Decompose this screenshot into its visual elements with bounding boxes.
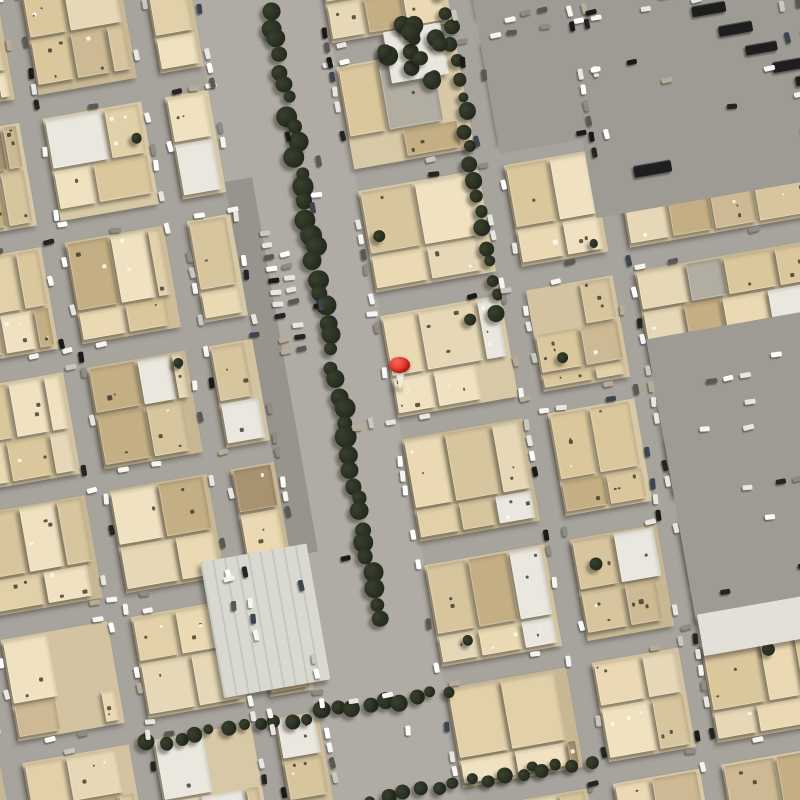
roof-detail xyxy=(422,472,424,474)
roof-detail xyxy=(50,573,55,578)
parked-car xyxy=(701,680,706,690)
roof-detail xyxy=(205,259,208,262)
roof-detail xyxy=(110,116,115,121)
roof-detail xyxy=(536,634,539,637)
parked-car xyxy=(272,432,278,444)
city-block xyxy=(0,495,103,616)
parked-car xyxy=(366,311,377,317)
roof-detail xyxy=(59,41,63,45)
roof-detail xyxy=(748,711,752,715)
parked-car xyxy=(28,68,34,79)
building xyxy=(580,321,623,365)
building xyxy=(507,796,565,800)
roof-detail xyxy=(569,438,572,441)
city-block xyxy=(0,372,81,492)
roof-detail xyxy=(24,214,28,218)
roof-detail xyxy=(614,488,617,491)
building xyxy=(724,758,783,800)
roof-detail xyxy=(82,589,87,594)
roof-detail xyxy=(510,477,513,480)
building xyxy=(459,498,497,530)
parked-car xyxy=(752,736,764,743)
parked-car xyxy=(524,419,531,431)
building xyxy=(120,539,179,589)
parked-car xyxy=(144,112,152,123)
tree xyxy=(443,18,461,36)
roof-detail xyxy=(512,466,515,469)
building xyxy=(562,216,603,255)
building xyxy=(594,656,647,705)
roof-detail xyxy=(553,239,558,244)
roof-detail xyxy=(595,603,598,606)
city-block xyxy=(43,101,160,221)
parked-car xyxy=(562,526,569,537)
roof-detail xyxy=(0,212,2,216)
parked-car xyxy=(42,147,48,158)
city-block xyxy=(0,247,59,367)
parked-car xyxy=(748,226,760,234)
roof-detail xyxy=(737,213,742,218)
parked-car xyxy=(6,39,13,50)
parked-car xyxy=(490,230,497,241)
city-block xyxy=(526,275,631,392)
roof-detail xyxy=(160,625,163,628)
parked-car xyxy=(270,289,282,295)
building xyxy=(137,355,176,403)
roof-detail xyxy=(607,561,611,565)
roof-detail xyxy=(570,465,573,468)
roof-detail xyxy=(532,199,535,202)
roof-detail xyxy=(481,306,486,311)
roof-detail xyxy=(525,501,530,506)
roof-detail xyxy=(26,693,29,696)
parked-car xyxy=(231,601,237,612)
building xyxy=(221,397,265,443)
building xyxy=(581,585,629,632)
roof-detail xyxy=(127,268,131,272)
roof-detail xyxy=(435,251,440,256)
roof-detail xyxy=(107,395,112,400)
roof-detail xyxy=(176,116,180,120)
roof-detail xyxy=(7,133,12,138)
building xyxy=(652,771,704,800)
roof-detail xyxy=(571,749,575,753)
building xyxy=(448,681,509,757)
parked-car xyxy=(529,451,535,462)
building xyxy=(45,111,109,169)
roof-detail xyxy=(103,761,106,764)
roof-detail xyxy=(45,338,48,341)
roof-detail xyxy=(293,764,296,767)
roof-detail xyxy=(427,325,431,329)
building xyxy=(14,699,60,737)
roof-detail xyxy=(534,554,538,558)
roof-detail xyxy=(600,304,604,308)
city-block xyxy=(548,398,653,516)
pin-head xyxy=(389,357,410,373)
city-block xyxy=(1,621,125,741)
roof-detail xyxy=(412,91,415,94)
parked-car xyxy=(163,222,170,233)
roof-detail xyxy=(48,48,53,53)
parked-car xyxy=(44,736,56,744)
roof-detail xyxy=(113,393,115,395)
building xyxy=(427,238,483,279)
pin-tail xyxy=(395,371,405,390)
roof-detail xyxy=(182,115,184,117)
building xyxy=(589,401,640,472)
building xyxy=(3,634,58,703)
parked-car xyxy=(208,475,214,486)
roof-detail xyxy=(411,148,415,152)
roof-detail xyxy=(544,357,547,360)
roof-detail xyxy=(92,764,95,767)
parked-car xyxy=(685,748,696,754)
parked-car xyxy=(425,156,436,163)
building xyxy=(125,298,169,332)
roof-detail xyxy=(636,789,639,792)
building xyxy=(31,34,75,85)
city-block xyxy=(0,0,15,118)
parked-car xyxy=(78,730,89,738)
parked-car xyxy=(123,604,130,616)
parked-car xyxy=(244,270,250,280)
roof-detail xyxy=(644,553,648,557)
roof-detail xyxy=(82,779,86,783)
parked-car xyxy=(460,57,466,68)
roof-detail xyxy=(732,200,736,204)
building xyxy=(418,302,484,370)
building xyxy=(79,306,127,340)
roof-detail xyxy=(460,643,463,646)
roof-detail xyxy=(734,667,738,671)
building xyxy=(637,265,690,310)
parked-car xyxy=(650,478,656,489)
roof-detail xyxy=(100,66,104,70)
roof-detail xyxy=(450,604,454,608)
roof-detail xyxy=(160,286,164,290)
roof-detail xyxy=(144,635,148,639)
parked-car xyxy=(118,466,130,473)
roof-detail xyxy=(292,772,295,775)
building xyxy=(756,698,800,732)
roof-detail xyxy=(412,8,416,12)
roof-detail xyxy=(304,735,307,738)
parked-car xyxy=(47,275,54,286)
city-block xyxy=(570,524,675,641)
building xyxy=(403,121,461,156)
roof-detail xyxy=(596,667,599,670)
building xyxy=(433,364,482,406)
satellite-map[interactable]: co xyxy=(0,0,800,800)
roof-detail xyxy=(645,604,649,608)
city-block xyxy=(21,0,137,95)
building xyxy=(211,342,253,401)
roof-detail xyxy=(43,456,46,459)
building xyxy=(614,527,662,582)
parked-car xyxy=(677,636,683,646)
roof-detail xyxy=(114,141,119,146)
satellite-imagery-layer xyxy=(0,0,800,800)
roof-detail xyxy=(32,15,34,17)
parked-car xyxy=(727,104,737,110)
roof-detail xyxy=(179,445,182,448)
building xyxy=(133,612,180,661)
roof-detail xyxy=(199,624,202,627)
roof-detail xyxy=(23,338,28,343)
parked-car xyxy=(197,412,204,423)
parked-car xyxy=(192,380,197,390)
parked-car xyxy=(145,719,155,725)
roof-detail xyxy=(54,75,57,78)
building xyxy=(89,362,142,413)
building xyxy=(478,623,523,655)
building xyxy=(496,491,536,523)
parked-car xyxy=(651,397,657,407)
roof-detail xyxy=(584,284,588,288)
parked-car xyxy=(311,192,322,198)
roof-detail xyxy=(790,273,794,277)
building xyxy=(417,504,461,537)
roof-detail xyxy=(192,635,196,639)
roof-detail xyxy=(551,341,555,345)
roof-detail xyxy=(596,496,600,500)
city-block xyxy=(0,123,37,244)
building xyxy=(775,241,800,285)
parked-car xyxy=(419,413,431,420)
roof-detail xyxy=(736,204,739,207)
roof-detail xyxy=(4,322,8,326)
parked-car xyxy=(28,353,38,360)
parked-car xyxy=(62,347,73,354)
roof-detail xyxy=(158,674,161,677)
building xyxy=(445,426,501,501)
parked-car xyxy=(78,351,85,363)
car-on-road xyxy=(318,299,324,310)
roof-detail xyxy=(717,695,719,697)
parked-car xyxy=(530,651,541,658)
roof-detail xyxy=(739,771,743,775)
parked-car xyxy=(363,264,369,275)
roof-detail xyxy=(39,678,43,682)
building xyxy=(175,138,221,195)
roof-detail xyxy=(446,349,450,353)
roof-detail xyxy=(525,575,529,579)
roof-detail xyxy=(632,474,636,478)
roof-detail xyxy=(9,129,12,132)
parked-car xyxy=(487,214,494,226)
roof-detail xyxy=(410,450,413,453)
roof-detail xyxy=(243,378,248,383)
parked-car xyxy=(501,293,507,304)
parked-car xyxy=(65,364,77,371)
building xyxy=(23,0,68,38)
parked-car xyxy=(625,255,632,266)
building xyxy=(562,475,608,511)
roof-detail xyxy=(597,295,602,300)
parked-car xyxy=(500,287,511,293)
parked-car xyxy=(564,258,576,266)
parked-car xyxy=(95,341,107,348)
building xyxy=(595,361,626,378)
parked-car xyxy=(261,774,267,784)
parked-car xyxy=(89,599,101,606)
roof-detail xyxy=(13,584,18,589)
building xyxy=(119,793,141,800)
roof-detail xyxy=(505,515,510,520)
parked-car xyxy=(219,538,226,548)
building xyxy=(439,631,479,662)
parked-car xyxy=(644,447,650,458)
roof-detail xyxy=(262,528,265,531)
parked-car xyxy=(545,545,552,556)
roof-detail xyxy=(24,580,28,584)
roof-detail xyxy=(18,459,22,463)
roof-detail xyxy=(125,451,128,454)
building xyxy=(97,407,152,465)
tree xyxy=(585,755,601,771)
parked-car xyxy=(103,493,109,504)
roof-detail xyxy=(509,500,513,504)
parked-car xyxy=(110,227,121,232)
parked-car xyxy=(456,38,468,45)
roof-detail xyxy=(513,633,517,637)
building xyxy=(107,24,131,71)
building xyxy=(517,222,565,262)
building xyxy=(8,378,50,436)
parked-car xyxy=(543,529,550,541)
building xyxy=(66,749,124,800)
building xyxy=(776,750,800,800)
city-block xyxy=(22,744,146,800)
parked-car xyxy=(57,221,68,227)
roof-detail xyxy=(40,7,42,9)
parked-car xyxy=(478,162,489,168)
parked-car xyxy=(512,356,520,367)
roof-detail xyxy=(48,522,53,527)
parked-car xyxy=(526,435,533,447)
parked-car xyxy=(272,301,283,306)
roof-detail xyxy=(123,115,127,119)
parked-car xyxy=(481,69,487,80)
parked-car xyxy=(397,456,403,467)
parked-car xyxy=(33,99,40,110)
roof-detail xyxy=(639,599,644,604)
parked-car xyxy=(637,318,643,328)
roof-detail xyxy=(303,761,306,764)
roof-detail xyxy=(336,12,340,16)
roof-detail xyxy=(468,264,472,268)
roof-detail xyxy=(75,179,79,183)
tree xyxy=(480,774,495,789)
parked-car xyxy=(451,9,458,20)
building xyxy=(201,286,243,318)
parked-car xyxy=(694,730,701,742)
roof-detail xyxy=(76,252,81,257)
building xyxy=(147,401,190,457)
roof-detail xyxy=(35,412,40,417)
roof-detail xyxy=(610,722,614,726)
parked-car xyxy=(672,604,679,616)
parked-car xyxy=(595,715,601,726)
building xyxy=(93,155,153,202)
roof-detail xyxy=(748,283,751,286)
building xyxy=(25,758,71,800)
parked-car xyxy=(151,461,161,467)
parked-car xyxy=(106,596,118,602)
roof-detail xyxy=(179,374,183,378)
parked-car xyxy=(796,0,800,8)
building xyxy=(360,184,422,254)
roof-detail xyxy=(782,193,785,196)
building xyxy=(606,469,647,504)
parked-car xyxy=(655,510,662,522)
parked-car xyxy=(258,758,265,769)
parked-car xyxy=(551,577,557,588)
roof-detail xyxy=(108,713,111,716)
city-block xyxy=(446,667,584,788)
building xyxy=(111,485,165,545)
parked-car xyxy=(153,160,159,172)
roof-detail xyxy=(60,594,64,598)
roof-detail xyxy=(86,36,91,41)
roof-detail xyxy=(463,388,466,391)
parked-car xyxy=(699,762,706,773)
building xyxy=(157,33,200,70)
roof-detail xyxy=(19,323,21,325)
parked-car xyxy=(680,623,692,631)
parked-car xyxy=(519,395,531,402)
roof-detail xyxy=(151,506,155,510)
roof-detail xyxy=(351,15,356,20)
parked-car xyxy=(145,730,151,740)
city-block xyxy=(65,225,181,344)
building xyxy=(70,28,112,78)
roof-detail xyxy=(669,730,673,734)
parked-car xyxy=(133,49,140,61)
roof-detail xyxy=(102,264,106,268)
parked-car xyxy=(523,306,529,317)
roof-detail xyxy=(380,195,384,199)
parked-car xyxy=(653,494,659,505)
parked-car xyxy=(603,381,614,388)
city-block xyxy=(0,767,18,800)
parked-car xyxy=(565,655,571,667)
city-block xyxy=(424,544,562,667)
building xyxy=(0,2,6,72)
parked-car xyxy=(150,761,156,771)
building xyxy=(104,104,146,158)
parked-car xyxy=(247,695,254,706)
building xyxy=(579,278,616,323)
roof-detail xyxy=(186,783,191,788)
parked-car xyxy=(332,86,338,97)
building xyxy=(141,656,197,714)
building xyxy=(246,787,264,800)
parked-car xyxy=(532,466,539,476)
parked-car xyxy=(250,614,256,625)
parked-car xyxy=(444,722,450,732)
building xyxy=(158,477,211,537)
building xyxy=(521,617,557,648)
roof-detail xyxy=(752,780,757,785)
parked-car xyxy=(692,633,698,644)
parked-car xyxy=(0,0,4,2)
building xyxy=(686,258,727,301)
building xyxy=(101,688,120,721)
roof-detail xyxy=(539,628,541,630)
building xyxy=(33,308,54,348)
